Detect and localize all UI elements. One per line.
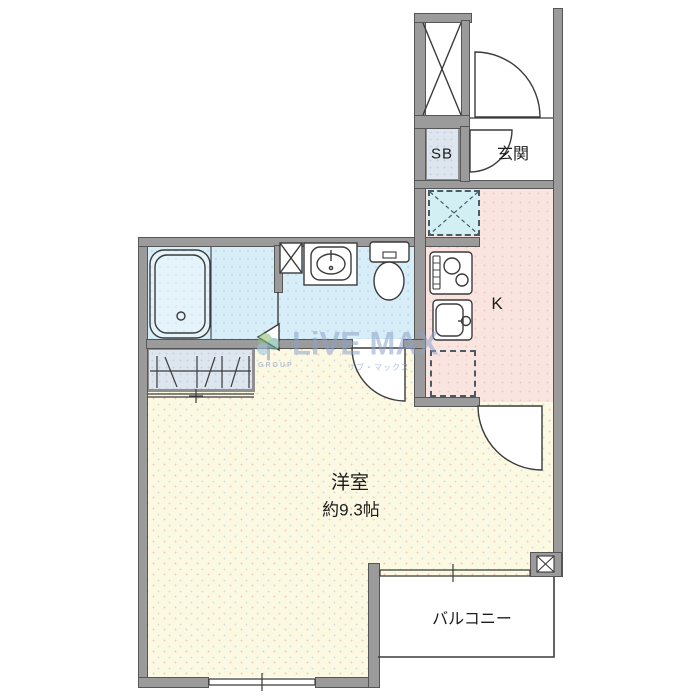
- pipe-shaft-icon: [423, 23, 461, 115]
- kitchen-sink-icon: [433, 300, 472, 340]
- washroom-shaft-icon: [280, 243, 302, 273]
- label-entrance: 玄関: [497, 140, 529, 164]
- floorplan: SB 玄関 K 洋室 約9.3帖 バルコニー LiVE MAX GROUP リブ…: [0, 0, 700, 700]
- entrance-door-arc: [470, 52, 553, 118]
- bathtub-icon: [150, 247, 211, 339]
- label-shoe-box: SB: [431, 146, 453, 163]
- bath-door-icon: [258, 292, 279, 350]
- balcony-shaft-icon: [537, 556, 554, 572]
- washer-space-x: [430, 192, 478, 234]
- kitchen-door-arc: [478, 406, 542, 470]
- bottom-window: [209, 673, 315, 691]
- label-balcony: バルコニー: [432, 605, 512, 629]
- fixture-linework: [0, 0, 700, 700]
- balcony-window: [380, 564, 530, 582]
- gas-stove-icon: [430, 252, 472, 294]
- toilet-icon: [370, 242, 409, 300]
- wash-basin-icon: [304, 243, 357, 285]
- label-main-room-size: 約9.3帖: [322, 496, 380, 521]
- label-kitchen: K: [491, 294, 502, 314]
- label-main-room: 洋室: [331, 468, 369, 495]
- washroom-door-arc: [352, 348, 405, 401]
- closet-hangers-icon: [148, 356, 254, 403]
